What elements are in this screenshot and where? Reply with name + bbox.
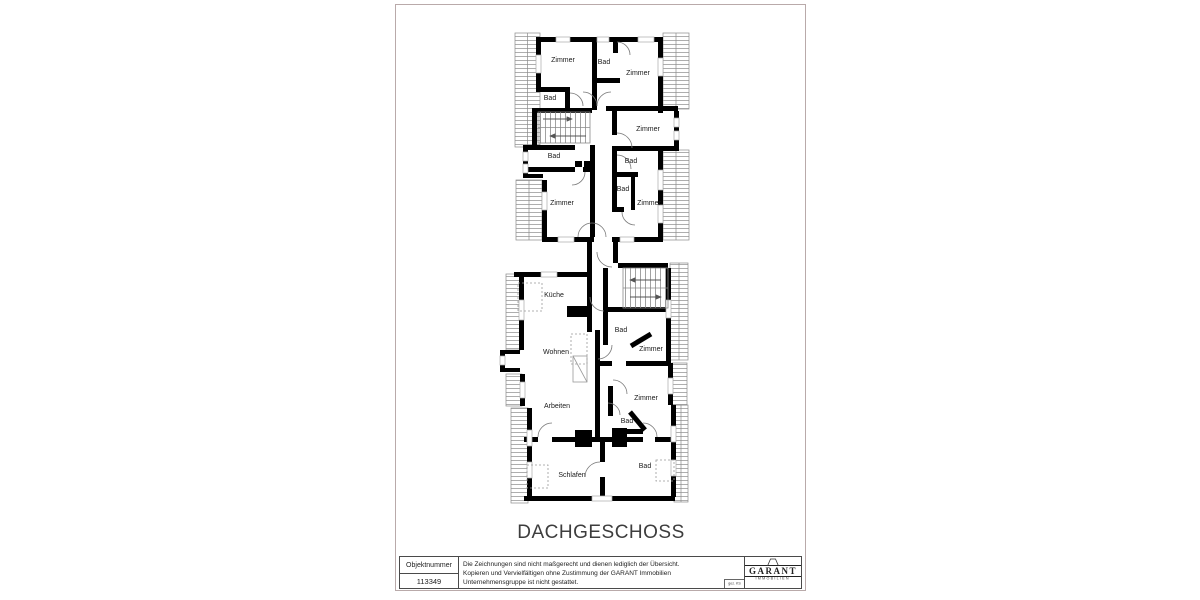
object-number-cell: Objektnummer 113349 [400,557,459,588]
logo-house-icon [766,558,780,566]
title-block: Objektnummer 113349 Die Zeichnungen sind… [399,556,802,589]
room-label: Zimmer [637,200,661,207]
disclaimer-line: Kopieren und Vervielfältigen ohne Zustim… [463,569,722,578]
room-label: Zimmer [636,126,660,133]
disclaimer-line: Unternehmensgruppe ist nicht gestattet. [463,578,722,587]
room-label: Küche [544,292,564,299]
garant-logo: GARANT IMMOBILIEN [745,565,800,584]
room-label: Bad [639,463,652,470]
room-label: Wohnen [543,349,569,356]
room-label: Bad [598,59,611,66]
floor-title: DACHGESCHOSS [517,522,685,544]
disclaimer-cell: Die Zeichnungen sind nicht maßgerecht un… [459,557,744,588]
signature-note: gez. KS [728,581,741,586]
logo-cell: GARANT IMMOBILIEN [744,557,801,588]
logo-brand: GARANT [745,565,800,577]
object-number-value: 113349 [400,574,458,588]
logo-subtitle: IMMOBILIEN [756,577,790,581]
door-openings [594,237,612,242]
room-label: Zimmer [626,70,650,77]
room-label: Zimmer [634,395,658,402]
room-label: Bad [548,153,561,160]
room-label: Arbeiten [544,403,570,410]
room-label: Bad [544,95,557,102]
disclaimer-line: Die Zeichnungen sind nicht maßgerecht un… [463,560,722,569]
floorplan-drawing: ZimmerBadZimmerBadZimmerBadBadBadZimmerZ… [0,0,1200,600]
room-label: Bad [621,418,634,425]
object-number-label: Objektnummer [400,557,458,574]
room-label: Zimmer [551,57,575,64]
room-label: Bad [625,158,638,165]
room-label: Bad [617,186,630,193]
room-label: Zimmer [639,346,663,353]
room-label: Schlafen [558,472,585,479]
room-label: Zimmer [550,200,574,207]
room-label: Bad [615,327,628,334]
signature-note-box: gez. KS [724,579,744,588]
